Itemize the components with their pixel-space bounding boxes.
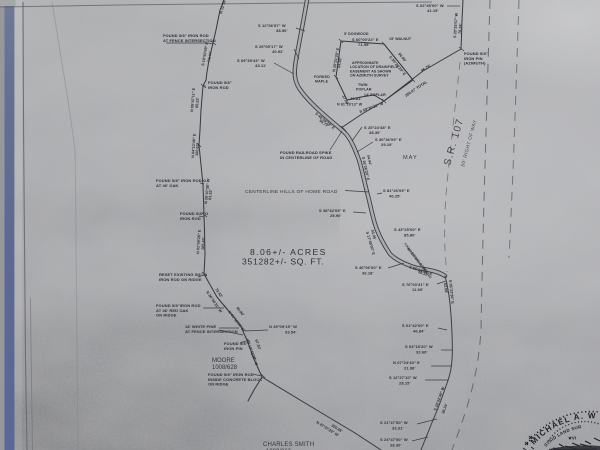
svg-text:S 21°47'50" W: S 21°47'50" W <box>380 420 408 425</box>
svg-text:ON RIDGE: ON RIDGE <box>208 382 229 387</box>
svg-text:38.30': 38.30' <box>369 130 381 135</box>
svg-text:S 24°47'50" W: S 24°47'50" W <box>380 437 408 442</box>
svg-text:1008/628: 1008/628 <box>212 365 238 371</box>
svg-text:S 12°27'10" W: S 12°27'10" W <box>389 375 417 380</box>
svg-text:ON AZIMUTH SURVEY: ON AZIMUTH SURVEY <box>350 74 389 78</box>
svg-text:IRON ROD ON RIDGE: IRON ROD ON RIDGE <box>159 277 202 282</box>
svg-text:33.54': 33.54' <box>285 330 297 335</box>
svg-text:43.11': 43.11' <box>255 63 266 68</box>
svg-text:21.98': 21.98' <box>404 366 416 371</box>
svg-text:25.90': 25.90' <box>330 213 342 218</box>
svg-text:8.06+/- ACRES: 8.06+/- ACRES <box>250 247 327 257</box>
svg-text:★VI: ★VI <box>567 436 576 441</box>
svg-text:76.34': 76.34' <box>458 23 463 34</box>
svg-text:AT FENCE INTERSECTION: AT FENCE INTERSECTION <box>163 38 216 43</box>
svg-text:5' DOGWOOD: 5' DOGWOOD <box>344 32 369 36</box>
svg-text:33.31': 33.31' <box>392 426 404 431</box>
svg-text:46.84': 46.84' <box>413 329 425 334</box>
svg-text:MAY: MAY <box>403 155 418 161</box>
svg-text:TWIN: TWIN <box>358 83 368 87</box>
svg-text:351282+/- SQ. FT.: 351282+/- SQ. FT. <box>242 257 324 267</box>
svg-text:AT FENCE INTERSECTION: AT FENCE INTERSECTION <box>185 329 238 334</box>
svg-text:40.92': 40.92' <box>272 49 284 54</box>
svg-text:S 04°18'20" W: S 04°18'20" W <box>405 344 433 349</box>
svg-text:S 43°25'00" E: S 43°25'00" E <box>394 227 421 232</box>
svg-text:29.19': 29.19' <box>381 142 393 147</box>
svg-text:28.30': 28.30' <box>390 443 402 448</box>
svg-text:ON RIDGE: ON RIDGE <box>156 313 177 318</box>
svg-text:40.25': 40.25' <box>389 194 401 199</box>
svg-text:CENTERLINE HILLS OF HOME ROAD: CENTERLINE HILLS OF HOME ROAD <box>245 189 338 195</box>
svg-text:POPLAR: POPLAR <box>356 87 372 91</box>
svg-text:IRON PIN: IRON PIN <box>224 346 243 351</box>
svg-text:N 39°09'15" W: N 39°09'15" W <box>269 324 297 329</box>
svg-text:14' POPLAR: 14' POPLAR <box>364 93 386 97</box>
svg-text:S 40°06'00" E: S 40°06'00" E <box>355 265 382 270</box>
svg-text:71.55': 71.55' <box>358 42 370 47</box>
svg-text:S 81°26'09" E: S 81°26'09" E <box>383 188 410 193</box>
svg-text:IRON ROD: IRON ROD <box>180 216 201 221</box>
svg-text:MOORE: MOORE <box>212 358 235 364</box>
svg-text:S 01°42'00" E: S 01°42'00" E <box>402 323 429 328</box>
svg-text:CHARLES SMITH: CHARLES SMITH <box>263 442 314 448</box>
svg-text:AT 46' OAK: AT 46' OAK <box>156 183 179 188</box>
svg-text:28.15': 28.15' <box>399 381 411 386</box>
svg-text:15' WALNUT: 15' WALNUT <box>389 37 412 41</box>
svg-text:(AZIMUTH): (AZIMUTH) <box>464 61 486 66</box>
svg-text:IRON ROD: IRON ROD <box>208 85 229 90</box>
svg-text:32.60': 32.60' <box>416 350 428 355</box>
svg-text:MAPLE: MAPLE <box>315 79 329 83</box>
svg-text:36.18': 36.18' <box>362 271 374 276</box>
svg-text:FORKED: FORKED <box>314 75 330 79</box>
svg-text:38.50': 38.50' <box>276 28 288 33</box>
svg-text:46.81': 46.81' <box>350 96 362 101</box>
svg-text:41.15': 41.15' <box>427 8 439 13</box>
svg-text:N 07°24'40" E: N 07°24'40" E <box>393 360 420 365</box>
svg-text:11.60': 11.60' <box>412 287 423 292</box>
svg-text:85.80': 85.80' <box>404 233 416 238</box>
svg-text:IN CENTERLINE OF ROAD: IN CENTERLINE OF ROAD <box>280 155 332 160</box>
